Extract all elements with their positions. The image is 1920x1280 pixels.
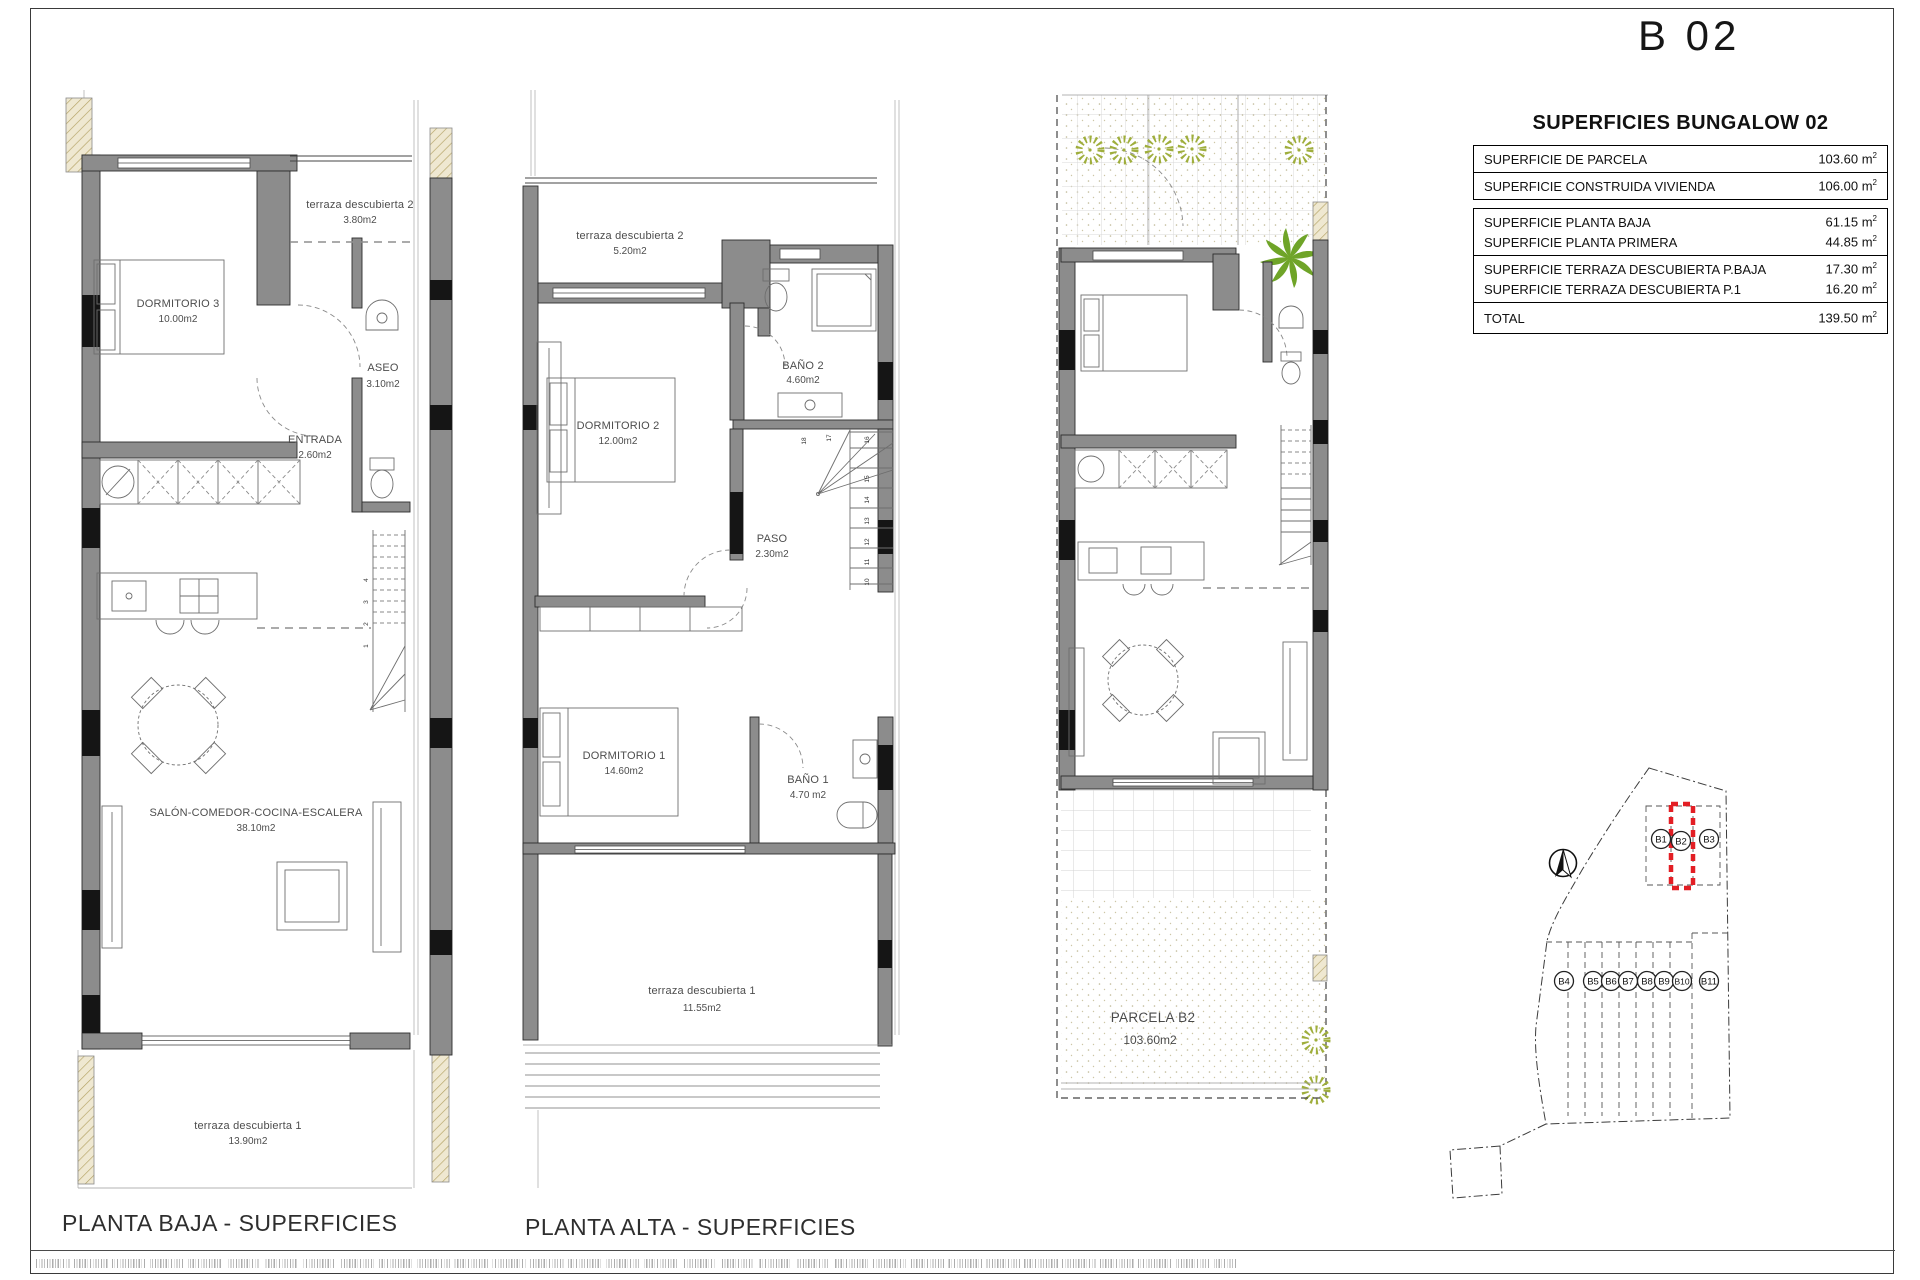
staircase: 4 3 2 1 bbox=[363, 530, 405, 712]
living-furniture bbox=[1069, 642, 1307, 784]
row-value: 17.30 m2 bbox=[1826, 261, 1877, 276]
kitchen-island bbox=[1078, 542, 1204, 595]
svg-text:4.70 m2: 4.70 m2 bbox=[790, 790, 827, 801]
svg-text:DORMITORIO 3: DORMITORIO 3 bbox=[137, 298, 220, 310]
svg-text:14: 14 bbox=[864, 496, 871, 504]
row-label: SUPERFICIE DE PARCELA bbox=[1484, 152, 1647, 167]
svg-text:B7: B7 bbox=[1622, 977, 1634, 988]
wall-openings bbox=[430, 280, 893, 968]
dining-table bbox=[1103, 640, 1184, 722]
svg-text:18: 18 bbox=[801, 437, 808, 445]
dining-table bbox=[131, 677, 225, 773]
context-lines bbox=[78, 90, 418, 1188]
svg-text:4: 4 bbox=[363, 578, 370, 582]
bathroom-fixtures bbox=[763, 269, 876, 417]
row-label: SUPERFICIE TERRAZA DESCUBIERTA P.BAJA bbox=[1484, 262, 1766, 277]
svg-text:B11: B11 bbox=[1701, 977, 1717, 988]
bathroom-fixtures bbox=[366, 300, 398, 498]
room-labels: terraza descubierta 2 3.80m2 DORMITORIO … bbox=[137, 199, 414, 1147]
kitchen-cabinets bbox=[100, 460, 300, 504]
row-label: SUPERFICIE CONSTRUIDA VIVIENDA bbox=[1484, 179, 1715, 194]
party-wall-hatch bbox=[1313, 955, 1327, 981]
svg-text:ASEO: ASEO bbox=[367, 362, 399, 374]
caption-planta-alta: PLANTA ALTA - SUPERFICIES bbox=[525, 1214, 856, 1241]
sheet-title: B 02 bbox=[1638, 12, 1740, 60]
bathroom-fixtures bbox=[837, 740, 877, 828]
svg-text:3.80m2: 3.80m2 bbox=[343, 215, 377, 226]
room-labels: terraza descubierta 2 5.20m2 DORMITORIO … bbox=[576, 230, 829, 1014]
svg-text:B3: B3 bbox=[1703, 835, 1715, 846]
svg-text:1: 1 bbox=[363, 644, 370, 648]
bed bbox=[540, 607, 742, 816]
row-value: 44.85 m2 bbox=[1826, 234, 1877, 249]
party-wall-hatch bbox=[432, 1055, 449, 1182]
svg-text:3.10m2: 3.10m2 bbox=[366, 379, 400, 390]
row-value: 106.00 m2 bbox=[1818, 178, 1877, 193]
svg-text:3: 3 bbox=[363, 600, 370, 604]
svg-text:13: 13 bbox=[864, 517, 871, 525]
svg-text:12.00m2: 12.00m2 bbox=[599, 436, 638, 447]
party-wall-hatch bbox=[78, 1056, 94, 1184]
svg-text:DORMITORIO 1: DORMITORIO 1 bbox=[583, 750, 666, 762]
svg-text:16: 16 bbox=[864, 436, 871, 444]
windows bbox=[118, 158, 350, 1045]
svg-text:4.60m2: 4.60m2 bbox=[786, 375, 820, 386]
walls bbox=[82, 155, 410, 1049]
disclaimer-microtext bbox=[36, 1259, 1236, 1268]
svg-text:terraza descubierta 2: terraza descubierta 2 bbox=[306, 199, 414, 211]
svg-text:15: 15 bbox=[864, 475, 871, 483]
walls bbox=[430, 178, 895, 1055]
svg-text:DORMITORIO 2: DORMITORIO 2 bbox=[577, 420, 660, 432]
svg-text:11.55m2: 11.55m2 bbox=[683, 1003, 722, 1014]
svg-text:B10: B10 bbox=[1674, 977, 1689, 987]
site-plan: B1 B2 B3 B4 B5 B6 B7 bbox=[1400, 610, 1860, 1210]
svg-text:2: 2 bbox=[363, 622, 370, 626]
svg-text:B1: B1 bbox=[1655, 835, 1667, 846]
svg-text:terraza descubierta 2: terraza descubierta 2 bbox=[576, 230, 684, 242]
svg-text:10: 10 bbox=[864, 578, 871, 586]
lower-lot-strip: B4 B5 B6 B7 B8 B9 B10 B11 bbox=[1546, 933, 1730, 1118]
svg-text:11: 11 bbox=[864, 558, 871, 565]
terrace-pergola bbox=[523, 1045, 892, 1108]
svg-text:14.60m2: 14.60m2 bbox=[605, 766, 644, 777]
svg-text:PASO: PASO bbox=[757, 533, 788, 545]
floorplan-planta-alta: 18 17 16 15 14 13 12 11 10 bbox=[425, 90, 900, 1195]
bathroom-fixtures bbox=[1279, 306, 1303, 384]
row-label: SUPERFICIE PLANTA PRIMERA bbox=[1484, 235, 1677, 250]
row-label: SUPERFICIE TERRAZA DESCUBIERTA P.1 bbox=[1484, 282, 1741, 297]
kitchen-cabinets bbox=[1075, 450, 1227, 488]
svg-text:BAÑO 2: BAÑO 2 bbox=[782, 359, 824, 372]
caption-planta-baja: PLANTA BAJA - SUPERFICIES bbox=[62, 1210, 397, 1237]
svg-text:terraza descubierta 1: terraza descubierta 1 bbox=[648, 985, 756, 997]
kitchen-island bbox=[97, 573, 257, 634]
row-value: 16.20 m2 bbox=[1826, 281, 1877, 296]
svg-text:103.60m2: 103.60m2 bbox=[1123, 1033, 1177, 1047]
surfaces-table-title: SUPERFICIES BUNGALOW 02 bbox=[1473, 112, 1888, 135]
svg-text:B4: B4 bbox=[1558, 977, 1570, 988]
doors bbox=[257, 305, 360, 436]
windows bbox=[1093, 251, 1253, 786]
row-label: TOTAL bbox=[1484, 311, 1525, 326]
svg-text:PARCELA B2: PARCELA B2 bbox=[1111, 1010, 1196, 1025]
bed bbox=[1081, 295, 1187, 371]
svg-text:5.20m2: 5.20m2 bbox=[613, 246, 647, 257]
svg-text:B5: B5 bbox=[1587, 977, 1599, 988]
svg-text:terraza descubierta 1: terraza descubierta 1 bbox=[194, 1120, 302, 1132]
svg-text:ENTRADA: ENTRADA bbox=[288, 434, 342, 446]
svg-text:B2: B2 bbox=[1675, 837, 1687, 848]
svg-text:B6: B6 bbox=[1605, 977, 1617, 988]
svg-text:BAÑO 1: BAÑO 1 bbox=[787, 773, 829, 786]
parcela-plan: PARCELA B2 103.60m2 bbox=[1053, 90, 1343, 1120]
svg-text:2.30m2: 2.30m2 bbox=[755, 549, 789, 560]
table-row: SUPERFICIE CONSTRUIDA VIVIENDA 106.00 m2 bbox=[1473, 172, 1888, 200]
svg-text:SALÓN-COMEDOR-COCINA-ESCALERA: SALÓN-COMEDOR-COCINA-ESCALERA bbox=[150, 806, 363, 819]
party-wall-hatch bbox=[1313, 202, 1328, 242]
table-row: SUPERFICIE DE PARCELA 103.60 m2 bbox=[1473, 145, 1888, 173]
row-value: 103.60 m2 bbox=[1818, 151, 1877, 166]
upper-lot-block: B1 B2 B3 bbox=[1646, 804, 1720, 888]
title-block-divider bbox=[30, 1250, 1895, 1251]
staircase bbox=[1279, 425, 1311, 565]
row-label: SUPERFICIE PLANTA BAJA bbox=[1484, 215, 1651, 230]
svg-text:38.10m2: 38.10m2 bbox=[237, 823, 276, 834]
floorplan-planta-baja: 4 3 2 1 terraza descubierta 2 3.80m2 bbox=[60, 90, 420, 1195]
table-row-group: SUPERFICIE PLANTA BAJA 61.15 m2 SUPERFIC… bbox=[1473, 208, 1888, 256]
surfaces-table: SUPERFICIES BUNGALOW 02 SUPERFICIE DE PA… bbox=[1473, 112, 1888, 334]
wall-openings bbox=[1059, 330, 1328, 750]
svg-text:10.00m2: 10.00m2 bbox=[159, 314, 198, 325]
row-value: 139.50 m2 bbox=[1818, 310, 1877, 325]
party-wall-hatch bbox=[430, 128, 452, 178]
svg-text:2.60m2: 2.60m2 bbox=[298, 450, 332, 461]
north-arrow-icon bbox=[1550, 849, 1577, 877]
table-row-total: TOTAL 139.50 m2 bbox=[1473, 302, 1888, 334]
parcel-bottom-edge bbox=[1061, 1083, 1321, 1098]
svg-text:12: 12 bbox=[864, 538, 871, 546]
svg-text:B8: B8 bbox=[1641, 977, 1653, 988]
row-value: 61.15 m2 bbox=[1826, 214, 1877, 229]
table-row-group: SUPERFICIE TERRAZA DESCUBIERTA P.BAJA 17… bbox=[1473, 255, 1888, 303]
terrace-rail bbox=[525, 178, 877, 183]
svg-text:13.90m2: 13.90m2 bbox=[229, 1136, 268, 1147]
svg-text:17: 17 bbox=[826, 434, 833, 442]
svg-text:B9: B9 bbox=[1658, 977, 1670, 988]
plan-sheet: B 02 bbox=[0, 0, 1920, 1280]
